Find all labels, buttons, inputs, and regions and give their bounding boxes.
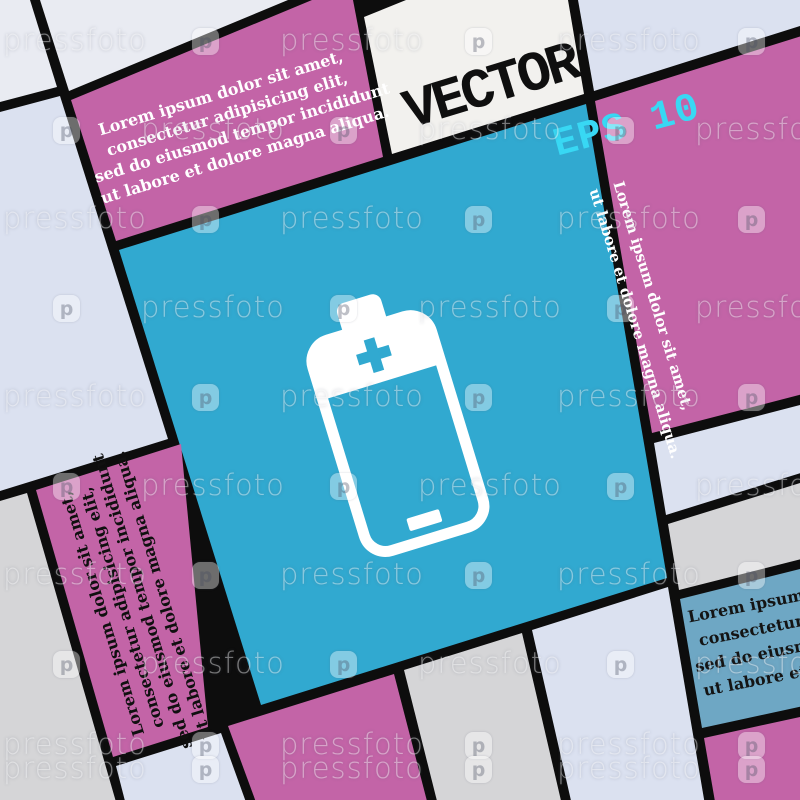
block-bottom-center-gray <box>404 633 562 800</box>
